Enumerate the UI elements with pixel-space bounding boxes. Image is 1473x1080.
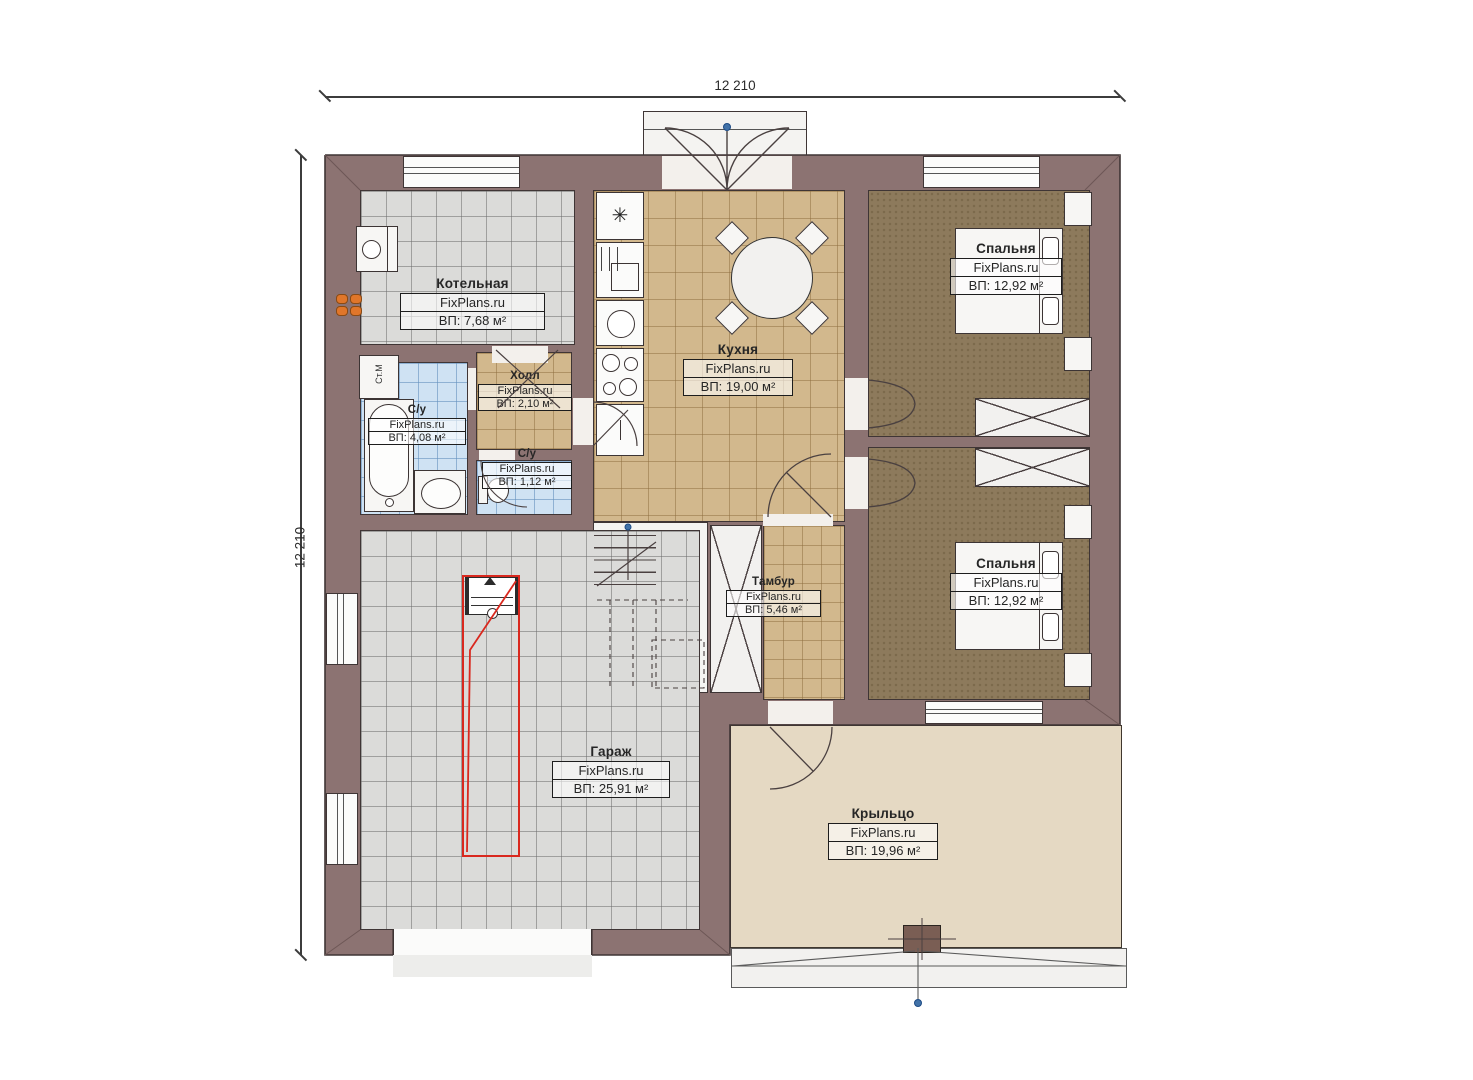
wardrobe (975, 398, 1090, 437)
floor-plan: 12 210 12 210 Ст.М (0, 0, 1473, 1080)
watermark: FixPlans.ru (401, 294, 544, 311)
balcony-door-gap (662, 156, 792, 189)
window-bottom-bedroom-2 (925, 701, 1043, 724)
room-label-bathroom: С/у FixPlans.ruВП: 4,08 м² (368, 404, 466, 445)
watermark: FixPlans.ru (727, 591, 820, 603)
pillow (1042, 297, 1059, 325)
washing-machine: Ст.М (359, 355, 399, 399)
room-name: Спальня (950, 241, 1062, 256)
boiler-unit (356, 226, 398, 272)
watermark: FixPlans.ru (479, 385, 571, 397)
watermark: FixPlans.ru (829, 824, 937, 841)
arrow-up-icon (484, 577, 496, 585)
radiator-segment (350, 306, 362, 316)
pillow (1042, 613, 1059, 641)
room-name: Крыльцо (828, 806, 938, 821)
room-label-kitchen: Кухня FixPlans.ruВП: 19,00 м² (683, 342, 793, 396)
room-name: С/у (482, 448, 572, 460)
garage-gate (393, 929, 592, 955)
garage-car-symbol (465, 577, 519, 615)
washbasin-bowl (421, 478, 461, 509)
garage-driveway-apron (393, 955, 592, 977)
nightstand (1064, 505, 1092, 539)
gate-section-lines (471, 590, 513, 608)
door-gap-bedroom-2 (845, 457, 868, 509)
door-gap-hall-boiler (492, 346, 548, 363)
room-label-wc: С/у FixPlans.ruВП: 1,12 м² (482, 448, 572, 489)
room-area: ВП: 2,10 м² (479, 397, 571, 410)
radiator-segment (350, 294, 362, 304)
room-label-vestibule: Тамбур FixPlans.ruВП: 5,46 м² (726, 576, 821, 617)
room-label-garage: Гараж FixPlans.ruВП: 25,91 м² (552, 744, 670, 798)
window-top-bedroom-1 (923, 156, 1040, 188)
dining-table (731, 237, 813, 319)
burner-icon (624, 357, 638, 371)
watermark: FixPlans.ru (684, 360, 792, 377)
room-area: ВП: 7,68 м² (401, 311, 544, 329)
watermark: FixPlans.ru (553, 762, 669, 779)
room-name: С/у (368, 404, 466, 416)
room-area: ВП: 19,00 м² (684, 377, 792, 395)
sink-bowl-icon (607, 310, 635, 338)
room-label-bedroom-1: Спальня FixPlans.ruВП: 12,92 м² (950, 241, 1062, 295)
porch-column (903, 925, 941, 953)
fridge: ✳ (596, 192, 644, 240)
floor-garage (360, 530, 700, 930)
radiator (336, 285, 362, 325)
room-area: ВП: 12,92 м² (951, 591, 1061, 609)
room-label-porch: Крыльцо FixPlans.ruВП: 19,96 м² (828, 806, 938, 860)
nightstand (1064, 192, 1092, 226)
door-gap-kitchen-vestibule (763, 514, 833, 526)
room-area: ВП: 5,46 м² (727, 603, 820, 616)
room-area: ВП: 1,12 м² (483, 475, 571, 488)
door-gap-hall-kitchen (573, 398, 593, 445)
kitchen-cabinet-dishrack (596, 242, 644, 298)
dimension-left-label: 12 210 (293, 488, 308, 608)
watermark: FixPlans.ru (951, 574, 1061, 591)
room-area: ВП: 12,92 м² (951, 276, 1061, 294)
bathtub-drain-icon (385, 498, 394, 507)
room-area: ВП: 19,96 м² (829, 841, 937, 859)
radiator-segment (336, 294, 348, 304)
window-top-boiler (403, 156, 520, 188)
boiler-burner-icon (362, 240, 381, 259)
room-label-hall: Холл FixPlans.ruВП: 2,10 м² (478, 370, 572, 411)
room-area: ВП: 25,91 м² (553, 779, 669, 797)
kitchen-base-cabinet (596, 404, 644, 456)
room-name: Котельная (400, 276, 545, 291)
nightstand (1064, 337, 1092, 371)
room-name: Тамбур (726, 576, 821, 588)
burner-icon (602, 354, 620, 372)
boiler-panel-line (387, 227, 388, 271)
porch-marker-dot (915, 1000, 922, 1007)
dimension-line-top (325, 96, 1120, 98)
washing-machine-label: Ст.М (374, 347, 384, 401)
snowflake-icon: ✳ (612, 205, 629, 227)
room-area: ВП: 4,08 м² (369, 431, 465, 444)
window-left-garage-1 (326, 593, 358, 665)
watermark: FixPlans.ru (483, 463, 571, 475)
room-name: Гараж (552, 744, 670, 759)
washbasin (414, 470, 466, 514)
room-label-bedroom-2: Спальня FixPlans.ruВП: 12,92 м² (950, 556, 1062, 610)
nightstand (1064, 653, 1092, 687)
balcony-landing (643, 111, 807, 158)
cabinet-handle-line (620, 420, 621, 440)
front-door-gap (768, 701, 833, 724)
door-gap-bedroom-1 (845, 378, 868, 430)
kitchen-sink (596, 300, 644, 346)
staircase-treads (594, 524, 656, 586)
dimension-top-label: 12 210 (675, 78, 795, 93)
room-name: Кухня (683, 342, 793, 357)
porch-steps (731, 948, 1127, 988)
window-left-garage-2 (326, 793, 358, 865)
cabinet-box (611, 263, 639, 291)
radiator-segment (336, 306, 348, 316)
room-name: Холл (478, 370, 572, 382)
burner-icon (619, 378, 637, 396)
room-name: Спальня (950, 556, 1062, 571)
gate-wheel-icon (487, 608, 498, 619)
stove (596, 348, 644, 402)
watermark: FixPlans.ru (951, 259, 1061, 276)
room-label-boiler: Котельная FixPlans.ruВП: 7,68 м² (400, 276, 545, 330)
burner-icon (603, 382, 616, 395)
watermark: FixPlans.ru (369, 419, 465, 431)
door-gap-hall-bathroom (468, 368, 476, 410)
wardrobe (975, 448, 1090, 487)
